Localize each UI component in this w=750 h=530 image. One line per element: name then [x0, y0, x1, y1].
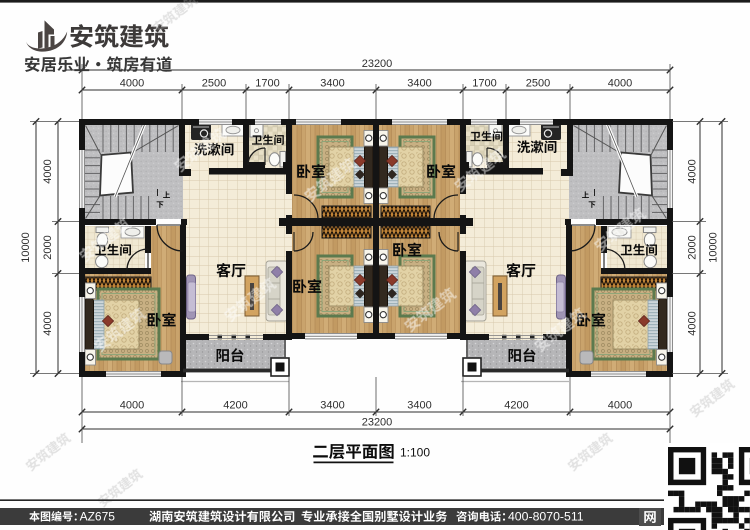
svg-text:23200: 23200 [362, 417, 393, 429]
svg-text:10000: 10000 [20, 232, 32, 263]
svg-text:4000: 4000 [120, 78, 144, 90]
svg-text:1700: 1700 [472, 78, 496, 90]
svg-text:4000: 4000 [120, 400, 144, 412]
svg-text:23200: 23200 [362, 58, 393, 70]
svg-text:3400: 3400 [407, 400, 431, 412]
svg-text:2500: 2500 [202, 78, 226, 90]
svg-text:400-8070-511: 400-8070-511 [508, 510, 584, 524]
svg-text:AZ675: AZ675 [80, 509, 116, 523]
svg-text:3400: 3400 [320, 400, 344, 412]
svg-text:2000: 2000 [687, 235, 699, 259]
svg-text:4000: 4000 [42, 311, 54, 335]
svg-text:4200: 4200 [504, 400, 528, 412]
svg-text:1:100: 1:100 [400, 446, 430, 460]
svg-text:10000: 10000 [708, 232, 720, 263]
svg-text:4000: 4000 [687, 159, 699, 183]
svg-text:4000: 4000 [42, 159, 54, 183]
svg-text:3400: 3400 [320, 78, 344, 90]
svg-text:1700: 1700 [255, 78, 279, 90]
svg-text:4000: 4000 [608, 400, 632, 412]
svg-text:3400: 3400 [407, 78, 431, 90]
svg-text:2000: 2000 [42, 235, 54, 259]
svg-text:4000: 4000 [608, 78, 632, 90]
svg-text:4000: 4000 [687, 311, 699, 335]
svg-text:4200: 4200 [223, 400, 247, 412]
svg-text:2500: 2500 [526, 78, 550, 90]
